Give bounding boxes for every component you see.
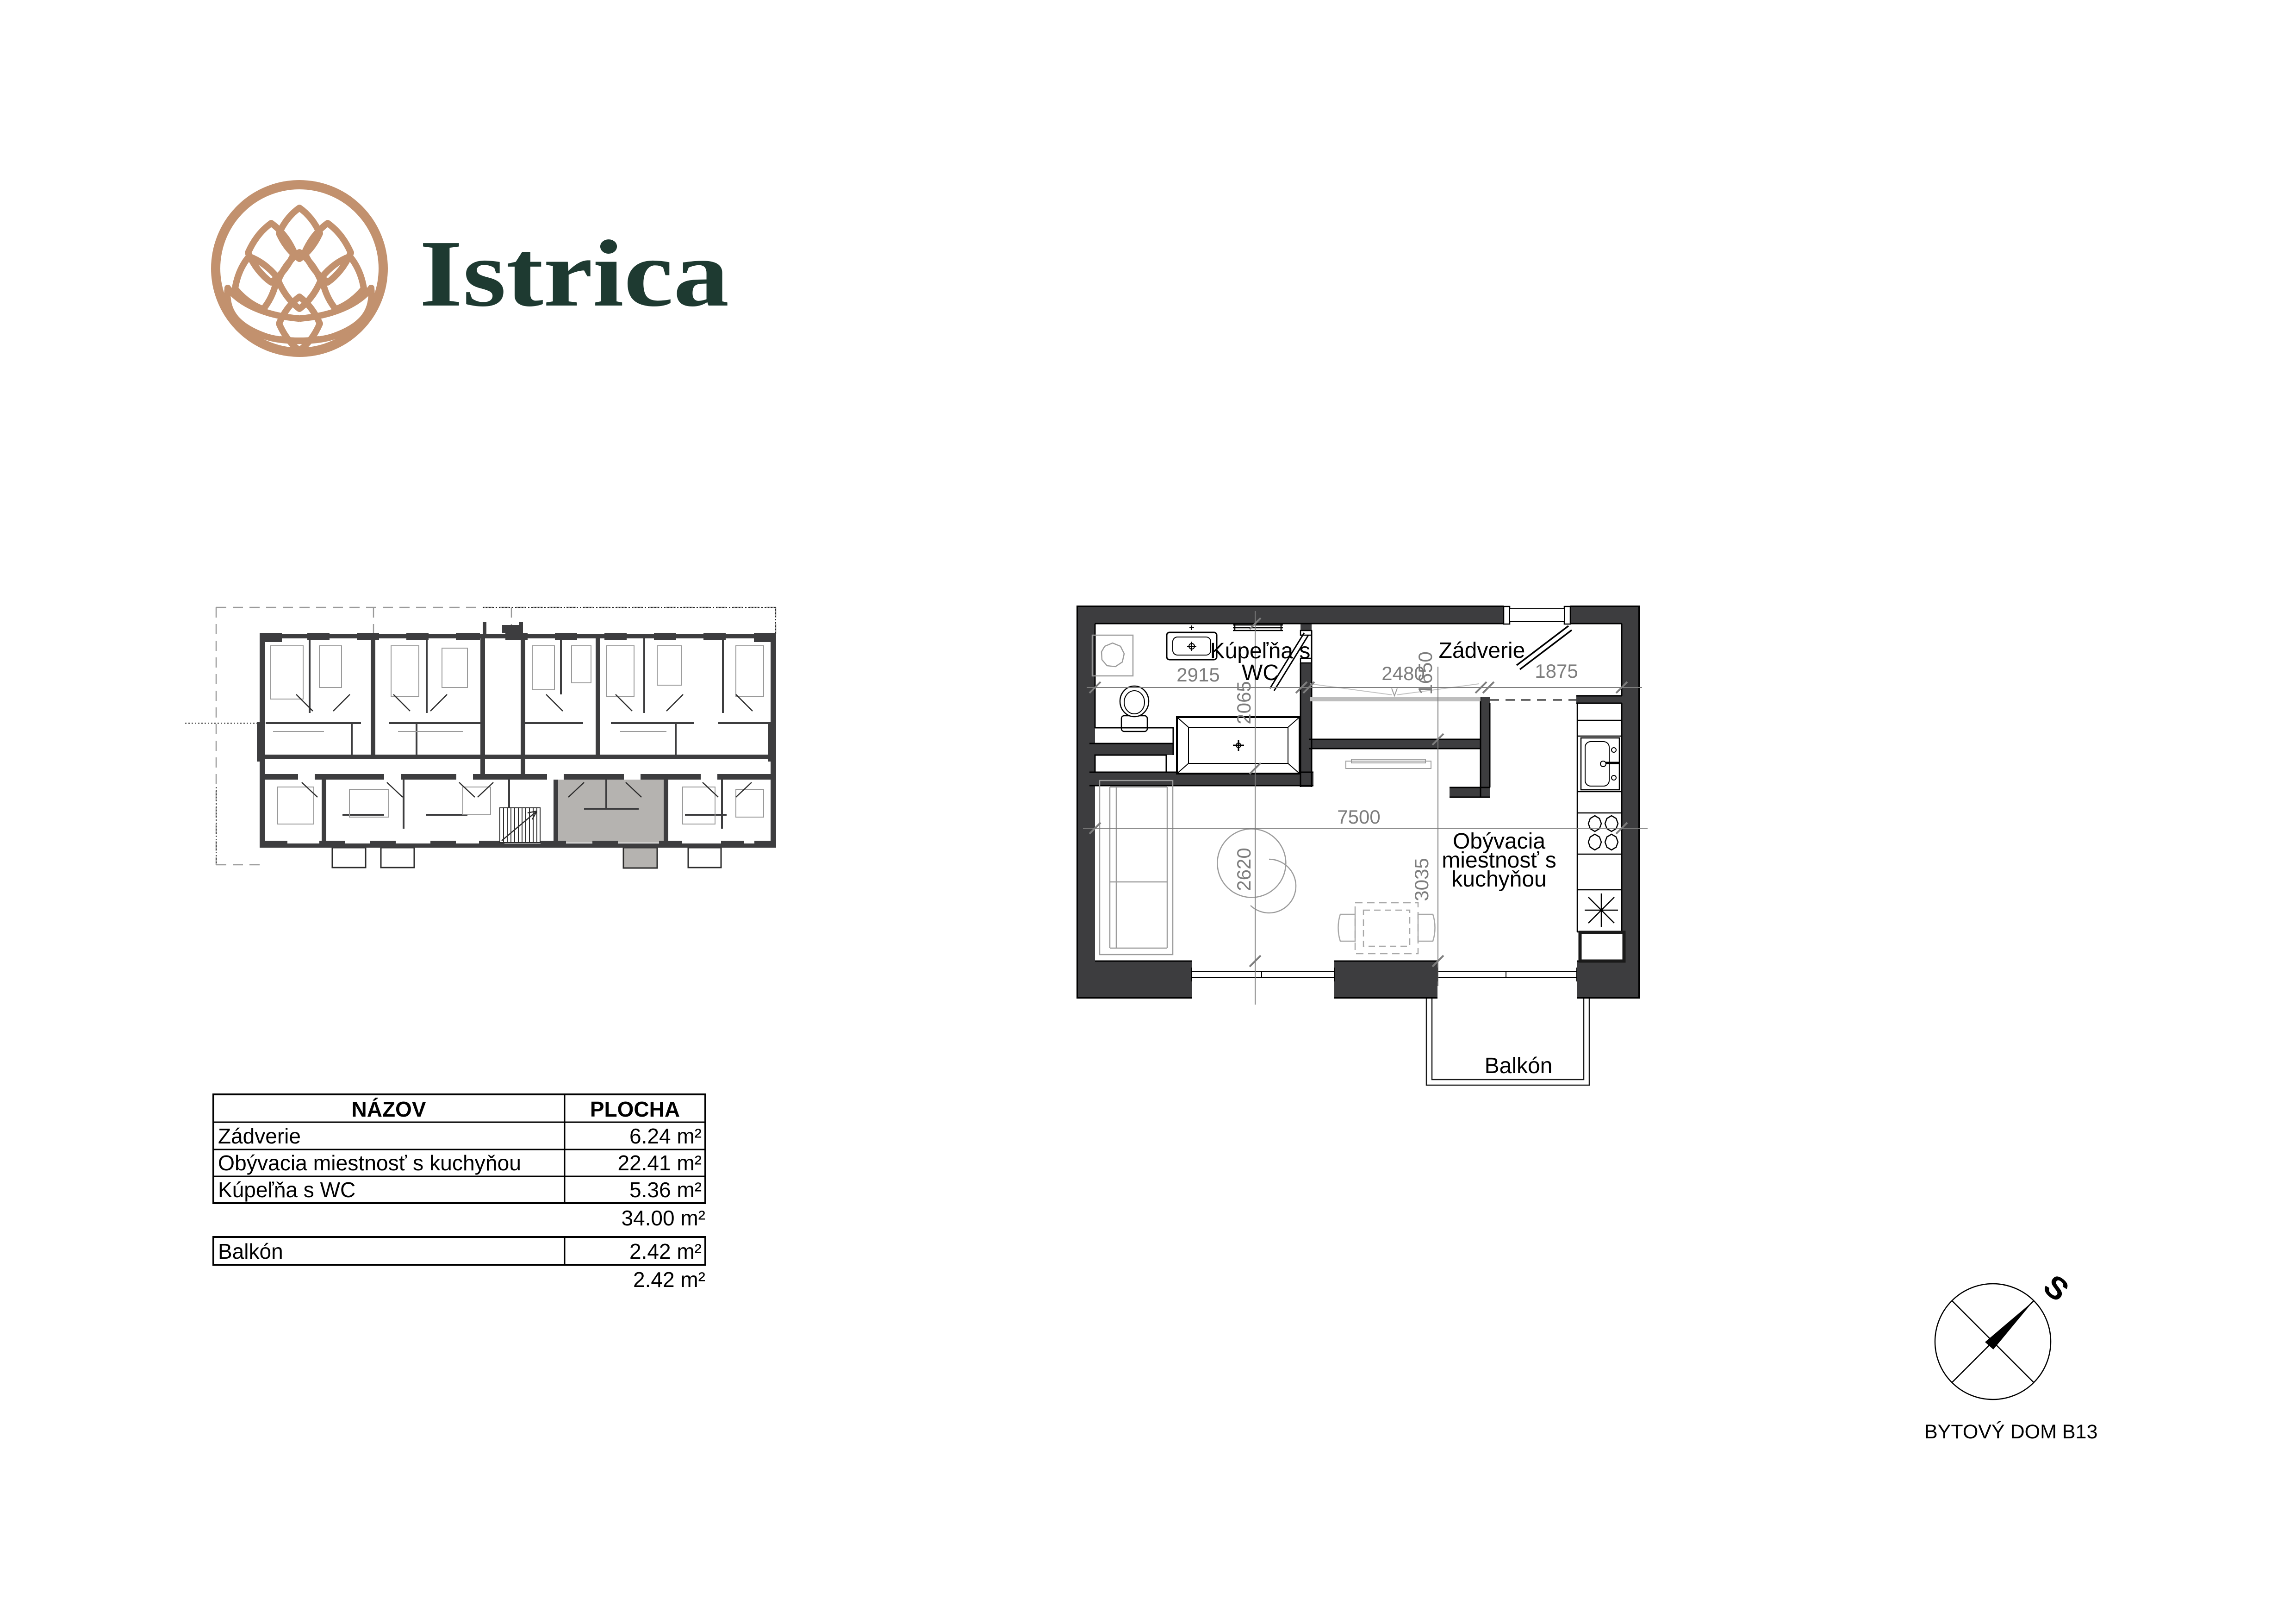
svg-text:kuchyňou: kuchyňou: [1451, 867, 1546, 892]
svg-text:34.00 m²: 34.00 m²: [621, 1206, 705, 1230]
svg-text:2620: 2620: [1233, 848, 1255, 891]
svg-text:22.41 m²: 22.41 m²: [617, 1151, 702, 1175]
svg-text:Kúpeľňa s: Kúpeľňa s: [1210, 639, 1311, 663]
svg-text:2065: 2065: [1233, 681, 1255, 724]
svg-text:Zádverie: Zádverie: [218, 1124, 301, 1148]
svg-text:1650: 1650: [1414, 651, 1436, 694]
svg-text:6.24 m²: 6.24 m²: [629, 1124, 702, 1148]
svg-text:Balkón: Balkón: [218, 1239, 283, 1263]
svg-text:7500: 7500: [1337, 806, 1380, 828]
svg-text:1875: 1875: [1535, 660, 1578, 682]
svg-text:3035: 3035: [1411, 858, 1432, 901]
svg-text:Istrica: Istrica: [419, 221, 729, 326]
svg-text:2.42 m²: 2.42 m²: [633, 1268, 705, 1292]
svg-text:Zádverie: Zádverie: [1439, 638, 1525, 663]
svg-text:2915: 2915: [1176, 664, 1220, 686]
svg-text:2.42 m²: 2.42 m²: [629, 1239, 702, 1263]
svg-text:NÁZOV: NÁZOV: [352, 1097, 426, 1121]
svg-text:WC: WC: [1242, 661, 1279, 685]
svg-text:Obývacia miestnosť s kuchyňou: Obývacia miestnosť s kuchyňou: [218, 1151, 521, 1175]
svg-text:PLOCHA: PLOCHA: [590, 1097, 680, 1121]
svg-text:BYTOVÝ DOM B13: BYTOVÝ DOM B13: [1924, 1421, 2097, 1443]
svg-text:Kúpeľňa s WC: Kúpeľňa s WC: [218, 1178, 355, 1202]
svg-text:5.36 m²: 5.36 m²: [629, 1178, 702, 1202]
svg-text:S: S: [2037, 1268, 2076, 1308]
svg-text:Balkón: Balkón: [1485, 1054, 1553, 1078]
